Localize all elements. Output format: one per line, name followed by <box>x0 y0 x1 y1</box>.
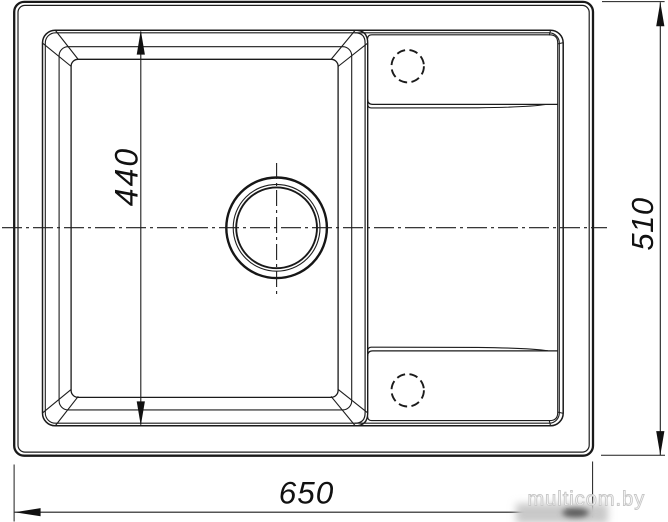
svg-text:440: 440 <box>108 147 144 206</box>
svg-text:510: 510 <box>625 197 660 250</box>
svg-text:650: 650 <box>279 475 335 511</box>
svg-text:multicom.by: multicom.by <box>528 489 646 511</box>
